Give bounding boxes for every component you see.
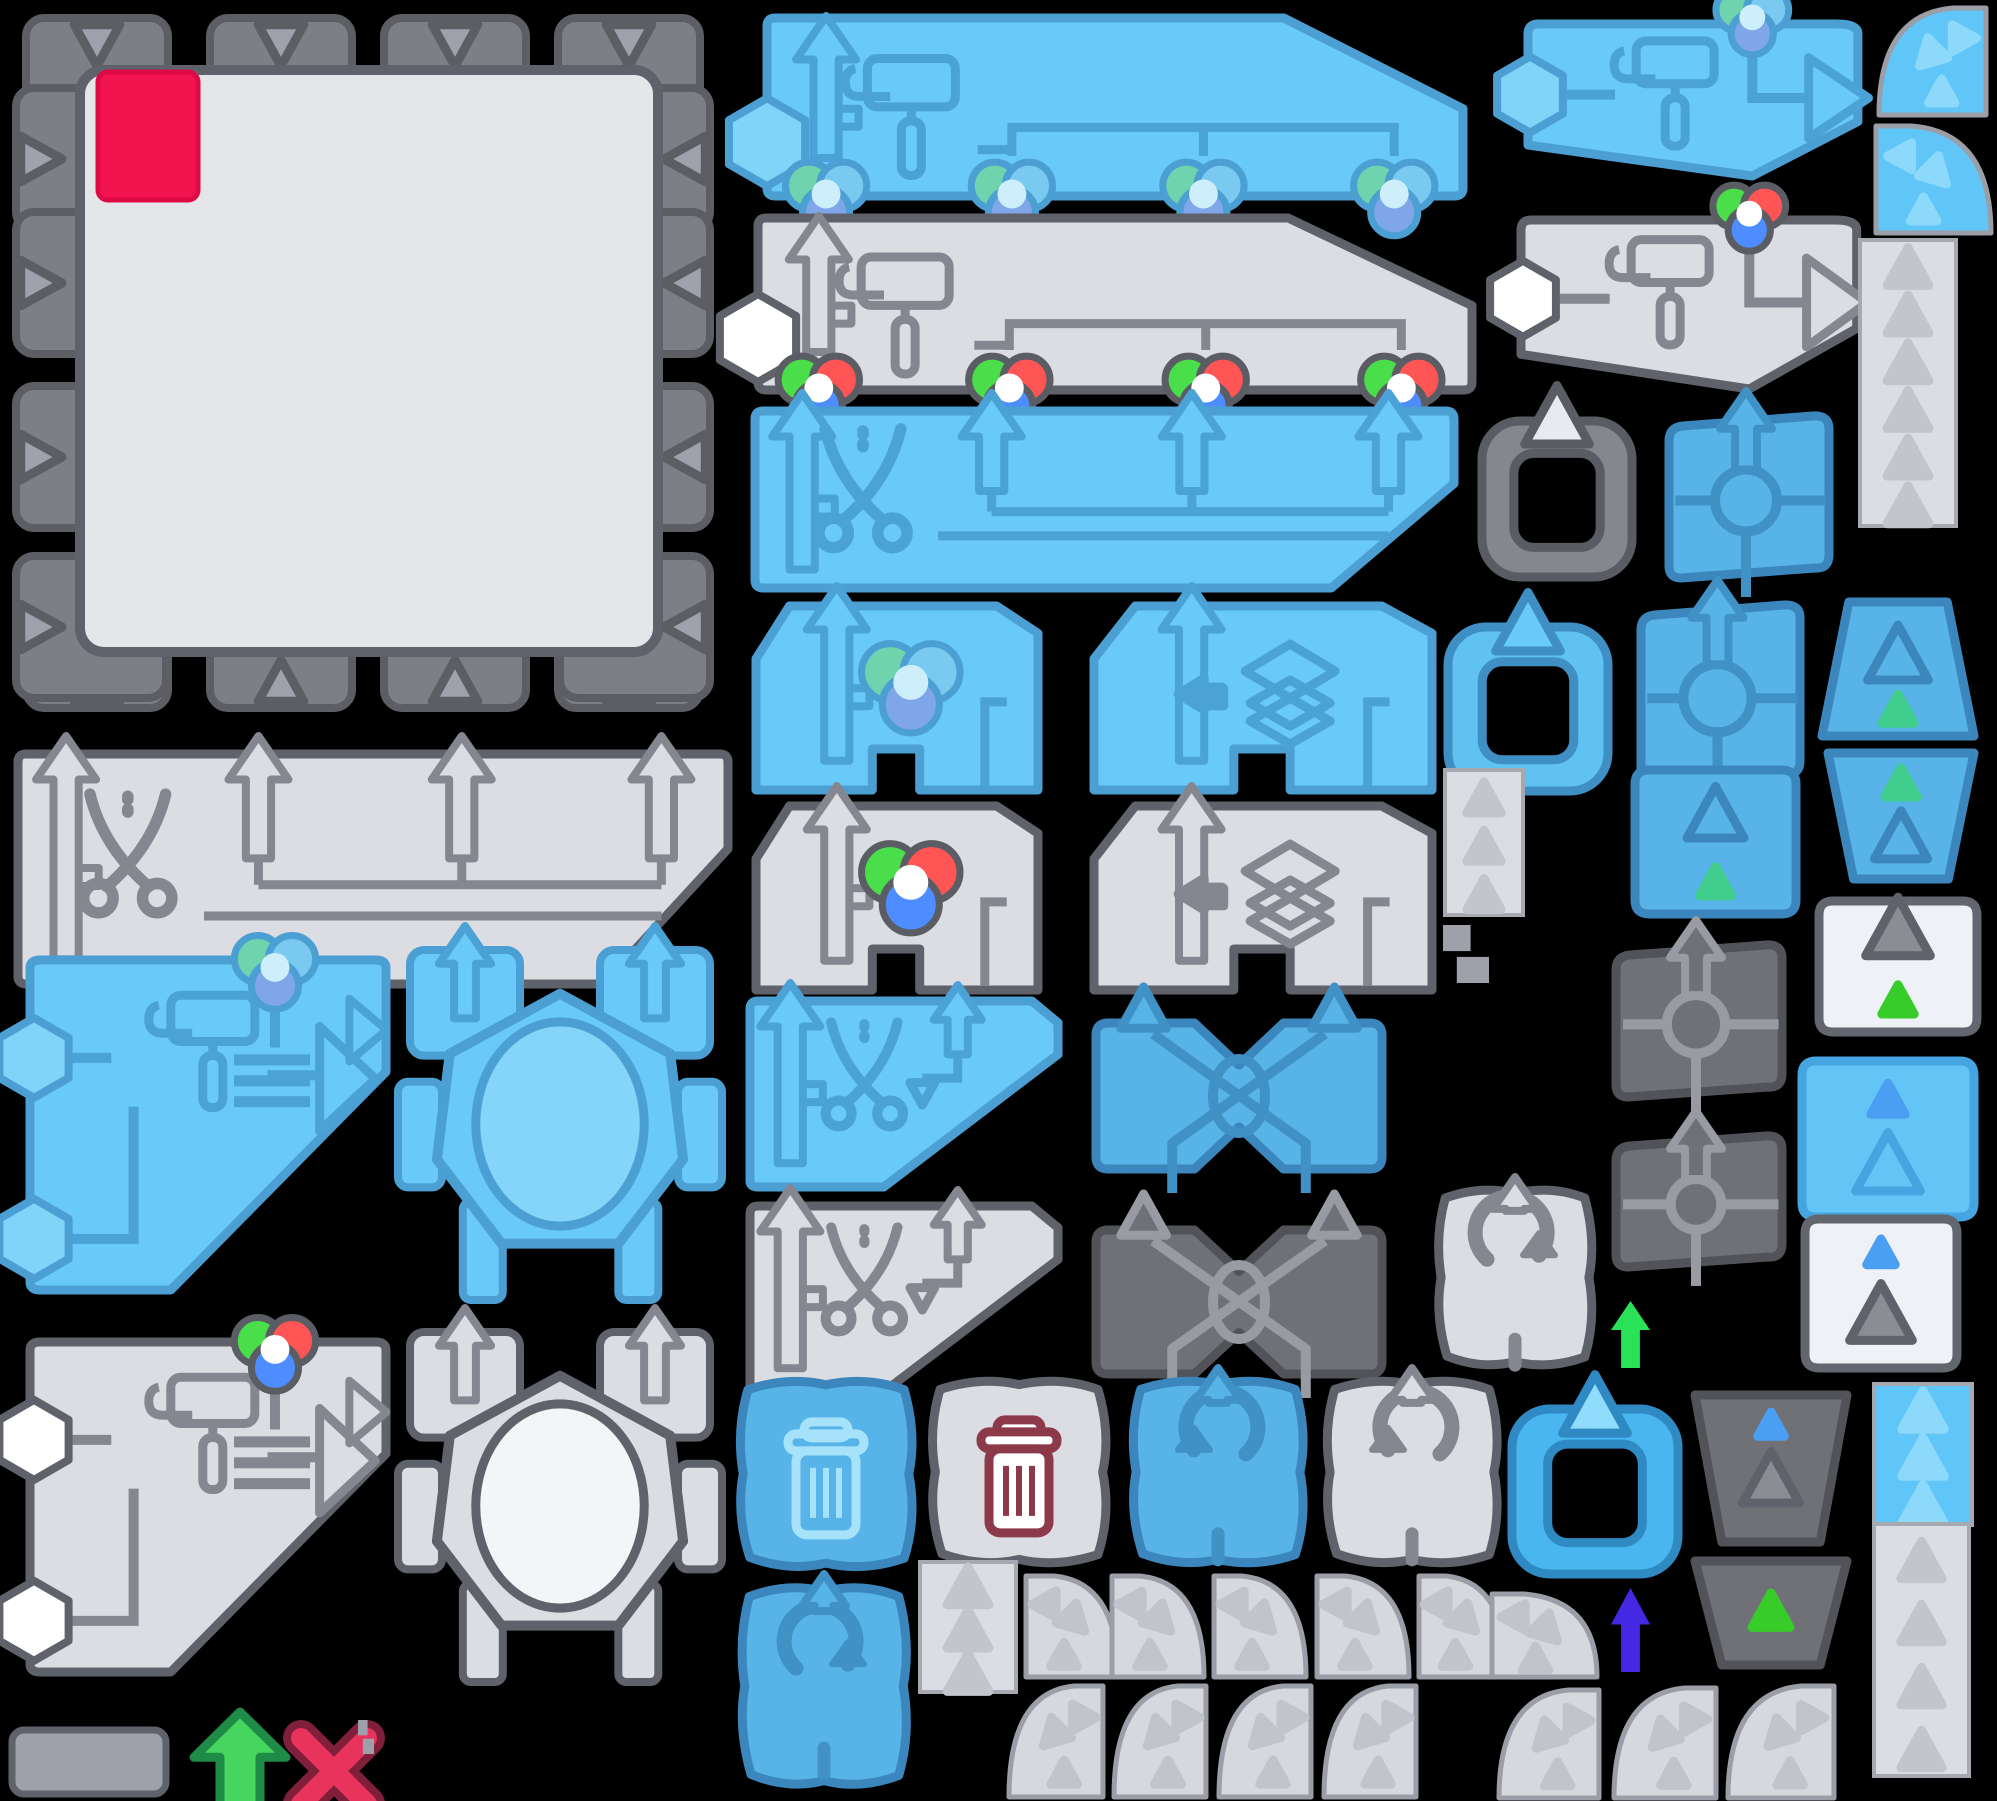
arrow-up-glyph	[194, 1712, 286, 1801]
trash-tile-gray	[925, 1376, 1113, 1568]
quarter-r2-1-graphic	[1005, 1682, 1107, 1800]
clip-triangle-icon	[1496, 593, 1561, 651]
clipboard-frame-blue-b	[1504, 1385, 1686, 1582]
banner-roller-out-blue	[1520, 14, 1872, 182]
quarter-r2-6	[1610, 1684, 1720, 1801]
quarter-r2-6-graphic	[1610, 1684, 1720, 1801]
quarter-r2-2	[1110, 1682, 1210, 1800]
rotate-ccw-tile-blue	[1126, 1376, 1310, 1568]
trash-icon	[981, 1420, 1057, 1533]
arrow-up-glyph	[1611, 1301, 1650, 1368]
arrow-up-purple	[1607, 1584, 1654, 1676]
wedge-color-ball-gray-graphic	[748, 800, 1044, 996]
octagon-panel-blue	[398, 948, 722, 1300]
tiny-block-a-graphic	[358, 1720, 374, 1754]
strip-triangles-c-graphic	[1872, 1524, 1971, 1776]
strip-triangles-a	[918, 1562, 1018, 1692]
strip-triangles-c	[1872, 1524, 1971, 1776]
rotate-ccw-tile-gray	[1320, 1376, 1504, 1568]
move-tile-dark-a-graphic	[1600, 940, 1792, 1102]
quarter-blue-a	[1875, 4, 1990, 118]
trash-tile-blue-graphic	[733, 1376, 919, 1572]
hexagon-icon	[1490, 261, 1556, 337]
octagon-panel-gray-graphic	[398, 1330, 722, 1682]
quarter-r1-1-graphic	[1022, 1572, 1122, 1680]
arrow-up-glyph	[1611, 1588, 1650, 1672]
hexagon-icon	[0, 1581, 69, 1661]
bit-block	[363, 1739, 374, 1754]
wedge-scissors-gray	[742, 1200, 1064, 1398]
strip-triangles-right-tall	[1858, 240, 1958, 526]
sprite-atlas	[0, 0, 1997, 1801]
clipboard-frame-blue-b-graphic	[1504, 1385, 1686, 1582]
quarter-r1-6	[1488, 1590, 1601, 1680]
quarter-r2-4-graphic	[1320, 1682, 1420, 1800]
rotate-ccw-tile-gray-graphic	[1320, 1376, 1504, 1568]
small-plate-gray	[8, 1726, 170, 1798]
cross-swap-blue-graphic	[1080, 1005, 1398, 1187]
tile-white-blue-triangle	[1795, 1211, 1967, 1376]
wedge-layers-gray-graphic	[1086, 800, 1438, 996]
wedge-layers-gray	[1086, 800, 1438, 996]
quarter-r1-2	[1108, 1572, 1208, 1680]
arrow-up-icon	[1493, 1177, 1537, 1211]
trapezoid-dark-a-graphic	[1689, 1387, 1853, 1550]
trapezoid-blue-down	[1822, 745, 1980, 887]
banner-roller-out-blue-graphic	[1520, 14, 1872, 182]
trapezoid-blue-up	[1816, 594, 1980, 744]
clipboard-frame-gray	[1474, 397, 1640, 585]
quarter-r1-3	[1210, 1572, 1310, 1680]
cross-swap-blue	[1080, 1005, 1398, 1187]
rotate-cw-tile-blue-graphic	[735, 1582, 913, 1790]
tile-white-green-triangle	[1809, 893, 1987, 1040]
arrow-head-icon	[1312, 1194, 1358, 1235]
move-tile-blue-a	[1653, 411, 1839, 583]
strip-triangles-blue-graphic	[1872, 1384, 1974, 1525]
quarter-r1-1	[1022, 1572, 1122, 1680]
roller-panel-gray-graphic	[22, 1332, 394, 1680]
roller-panel-blue	[22, 950, 394, 1298]
rotate-cw-tile-blue	[735, 1582, 913, 1790]
wedge-layers-blue-graphic	[1086, 600, 1438, 796]
quarter-r2-3-graphic	[1215, 1682, 1315, 1800]
quarter-r2-3	[1215, 1682, 1315, 1800]
tiny-block-a	[358, 1720, 374, 1754]
rotate-cw-tile-gray	[1432, 1185, 1598, 1370]
wedge-color-ball-gray	[748, 800, 1044, 996]
banner-scissors-blue	[745, 405, 1460, 592]
hexagon-icon	[1497, 57, 1563, 133]
small-plate-gray-graphic	[8, 1726, 170, 1798]
quarter-blue-a-graphic	[1875, 4, 1990, 118]
trapezoid-dark-b-graphic	[1689, 1553, 1853, 1673]
quarter-r2-7	[1724, 1682, 1838, 1801]
arrow-up-icon	[802, 1574, 846, 1611]
wedge-scissors-blue	[742, 995, 1064, 1193]
plate-body	[12, 1730, 166, 1794]
rotate-cw-tile-gray-graphic	[1432, 1185, 1598, 1370]
banner-roller-out-gray-graphic	[1513, 210, 1871, 395]
octagon-panel-blue-graphic	[398, 948, 722, 1300]
arrow-up-green-graphic	[1607, 1297, 1654, 1372]
wedge-layers-blue	[1086, 600, 1438, 796]
cross-swap-dark	[1080, 1212, 1398, 1392]
wedge-color-ball-blue-graphic	[748, 600, 1044, 796]
cross-swap-dark-graphic	[1080, 1212, 1398, 1392]
banner-roller-balls-gray	[748, 212, 1478, 392]
strip-triangles-b	[1443, 770, 1525, 915]
frame-hole	[1514, 453, 1600, 547]
arrow-up-green	[1607, 1297, 1654, 1372]
octagon-panel-gray	[398, 1330, 722, 1682]
quarter-r1-4	[1313, 1572, 1413, 1680]
hexagon-icon	[0, 1018, 69, 1098]
banner-scissors-blue-graphic	[745, 405, 1460, 592]
banner-roller-balls-blue-graphic	[757, 12, 1469, 198]
wedge-scissors-blue-graphic	[742, 995, 1064, 1193]
quarter-r2-5	[1495, 1686, 1603, 1801]
quarter-r2-2-graphic	[1110, 1682, 1210, 1800]
tiny-block-b	[1443, 925, 1489, 983]
quarter-r2-5-graphic	[1495, 1686, 1603, 1801]
trapezoid-blue-up-graphic	[1816, 594, 1980, 744]
quarter-r1-6-graphic	[1488, 1590, 1601, 1680]
banner-roller-balls-blue	[757, 12, 1469, 198]
quarter-blue-b-graphic	[1872, 122, 1995, 236]
trash-tile-blue	[733, 1376, 919, 1572]
bit-block	[1443, 925, 1471, 951]
hexagon-icon	[0, 1400, 69, 1480]
tile-blue-triangles-graphic	[1792, 1053, 1984, 1225]
roller-panel-blue-graphic	[22, 950, 394, 1298]
hexagon-icon	[0, 1199, 69, 1279]
frame-hole	[1548, 1444, 1643, 1543]
arrow-up-green-outlined	[190, 1708, 290, 1801]
selected-cell-chip	[98, 72, 198, 200]
quarter-r1-2-graphic	[1108, 1572, 1208, 1680]
trash-tile-gray-graphic	[925, 1376, 1113, 1568]
strip-triangles-right-tall-graphic	[1858, 240, 1958, 526]
wedge-scissors-gray-graphic	[742, 1200, 1064, 1398]
bit-block	[1457, 957, 1489, 983]
trapezoid-dark-a	[1689, 1387, 1853, 1550]
quarter-r1-3-graphic	[1210, 1572, 1310, 1680]
move-tile-dark-a	[1600, 940, 1792, 1102]
move-tile-blue-b	[1625, 600, 1810, 789]
arrow-head-icon	[1121, 1194, 1167, 1235]
move-tile-dark-b-graphic	[1600, 1131, 1792, 1272]
clipboard-frame-gray-graphic	[1474, 397, 1640, 585]
trapezoid-dark-b	[1689, 1553, 1853, 1673]
move-tile-blue-a-graphic	[1653, 411, 1839, 583]
strip-triangles-blue	[1872, 1384, 1974, 1525]
wedge-color-ball-blue	[748, 600, 1044, 796]
quarter-r1-4-graphic	[1313, 1572, 1413, 1680]
banner-roller-balls-gray-graphic	[748, 212, 1478, 392]
tile-blue-green-triangle	[1625, 762, 1806, 922]
puzzle-board-graphic	[10, 8, 716, 714]
tiny-block-b-graphic	[1443, 925, 1489, 983]
octagon-ellipse	[476, 1022, 644, 1226]
octagon-ellipse	[476, 1404, 644, 1608]
move-tile-dark-b	[1600, 1131, 1792, 1272]
tile-white-blue-triangle-graphic	[1795, 1211, 1967, 1376]
trapezoid-blue-down-graphic	[1822, 745, 1980, 887]
strip-triangles-a-graphic	[918, 1562, 1018, 1692]
quarter-r2-7-graphic	[1724, 1682, 1838, 1801]
puzzle-board	[10, 8, 716, 714]
arrow-up-purple-graphic	[1607, 1584, 1654, 1676]
quarter-r2-1	[1005, 1682, 1107, 1800]
rotate-ccw-tile-blue-graphic	[1126, 1376, 1310, 1568]
banner-roller-out-gray	[1513, 210, 1871, 395]
tile-blue-triangles	[1792, 1053, 1984, 1225]
move-tile-blue-b-graphic	[1625, 600, 1810, 789]
quarter-blue-b	[1872, 122, 1995, 236]
tile-blue-green-triangle-graphic	[1625, 762, 1806, 922]
bit-block	[358, 1720, 368, 1735]
arrow-up-green-outlined-graphic	[190, 1708, 290, 1801]
frame-hole	[1482, 662, 1574, 760]
roller-panel-gray	[22, 1332, 394, 1680]
tile-white-green-triangle-graphic	[1809, 893, 1987, 1040]
quarter-r2-4	[1320, 1682, 1420, 1800]
clip-triangle-icon	[1563, 1375, 1628, 1433]
strip-triangles-b-graphic	[1443, 770, 1525, 915]
